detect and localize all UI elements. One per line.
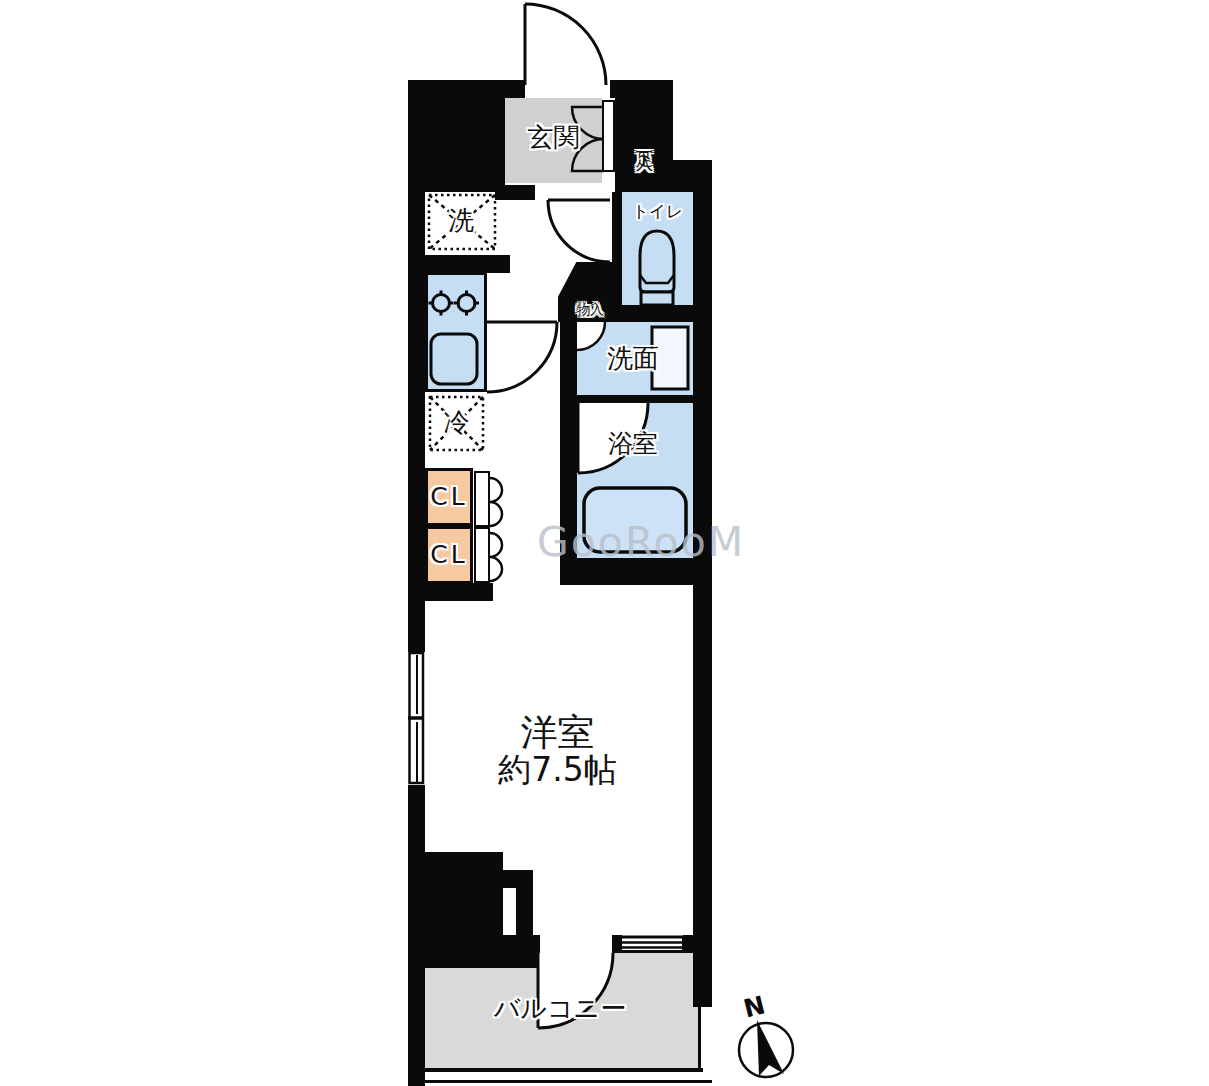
genkan-label: 玄関 [505, 124, 602, 151]
closet-bifold-arcs [490, 478, 502, 526]
toilet-door-arc [548, 200, 610, 262]
entrance-door-arc [525, 4, 606, 85]
western-room-label: 洋室 [470, 714, 645, 753]
balcony-label: バルコニー [455, 995, 665, 1022]
closet-upper-label: CL [425, 484, 473, 510]
toilet-icon [640, 231, 674, 305]
western-room-size: 約7.5帖 [455, 753, 660, 788]
window-left-wall [408, 653, 424, 783]
storage-label: 物入 [572, 302, 608, 316]
washer-space-label: 洗 [427, 207, 495, 234]
compass-north-label: N [741, 990, 768, 1023]
hallway-door-arc [487, 322, 557, 392]
closet-bifold-arcs [490, 533, 502, 581]
toilet-label: トイレ [622, 203, 693, 220]
watermark: GooRooM [537, 518, 745, 566]
closet-lower-label: CL [425, 542, 473, 568]
bathroom-label: 浴室 [577, 431, 689, 457]
compass-icon: N [739, 990, 793, 1077]
washroom-label: 洗面 [577, 345, 689, 372]
window-balcony-wall [620, 937, 684, 952]
shoe-cabinet-label: 下足入 [620, 106, 653, 172]
fridge-space-label: 冷 [428, 409, 485, 436]
kitchen-sink-icon [431, 334, 477, 384]
floorplan-canvas: N 玄関 下足入 トイレ 洗 冷 物入 洗面 浴室 CL CL 洋室 約7.5帖… [0, 0, 1209, 1086]
stove-burners-icon [429, 291, 480, 316]
